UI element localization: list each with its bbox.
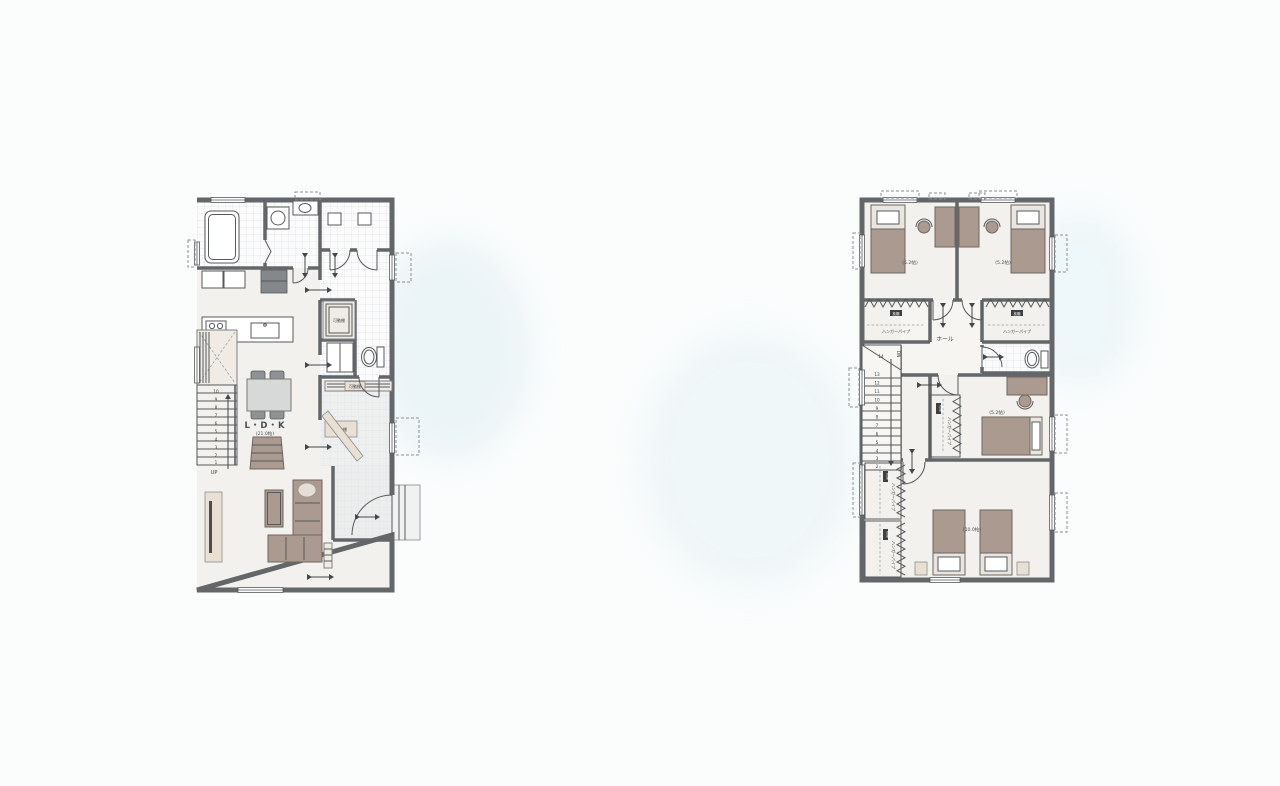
pillow (985, 557, 1007, 571)
stair-number: 2 (876, 464, 879, 469)
movable-shelf-closet: 可動棚 (323, 301, 355, 339)
stair-number: 7 (876, 423, 879, 428)
stair-number: 3 (876, 456, 879, 461)
stair-number: 11 (874, 389, 880, 394)
stair-number: 4 (876, 449, 879, 454)
stair-number: 12 (874, 381, 880, 386)
pillow-shelf-label: 枕棚 (886, 531, 891, 538)
hanger-pipe-label: ハンガーパイプ (1003, 328, 1031, 334)
bathtub (205, 211, 239, 263)
stair-number: 8 (215, 405, 218, 410)
stair-number: 7 (215, 413, 218, 418)
stair-number: 9 (215, 397, 218, 402)
upper-cabinet (202, 271, 223, 288)
tv-board (205, 492, 222, 562)
stair-number: 10 (874, 398, 880, 403)
floor-plan-2f: (5.2帖) (5.2帖) 枕棚 ハンガーパイプ 枕棚 ハンガーパイプ ホール … (845, 185, 1080, 595)
room-size-label: (5.2帖) (989, 409, 1005, 416)
room-size-label: (10.0帖) (963, 526, 982, 533)
stair-number: 10 (213, 389, 219, 394)
floor-plan-1f: 10 9 8 7 6 5 4 3 2 1 UP L・D・K (21.0帖) (183, 185, 428, 605)
shoe-cabinet (324, 543, 332, 568)
washing-machine (267, 207, 289, 229)
ldk-label: L・D・K (244, 421, 285, 431)
stair-number: 6 (876, 432, 879, 437)
movable-shelf-label: 可動棚 (333, 317, 345, 323)
hanger-pipe-label: ハンガーパイプ (891, 483, 897, 511)
washbasin (327, 343, 353, 372)
upper-cabinet (224, 271, 245, 288)
wall-cabinet (328, 213, 341, 225)
hanger-pipe-label: ハンガーパイプ (882, 328, 910, 334)
stair-number: 5 (876, 440, 879, 445)
stair-number: 6 (215, 421, 218, 426)
stair-number: 13 (874, 372, 880, 377)
stairs-down: 14 DN 13 12 11 10 9 8 7 6 5 4 3 2 (862, 345, 901, 470)
dining-table (247, 379, 291, 411)
hall-label: ホール (936, 336, 954, 343)
stair-number: 1 (215, 460, 218, 465)
desk (935, 207, 955, 247)
desk (1007, 377, 1047, 395)
stairs-up-label: UP (211, 470, 218, 476)
stairs-down-label: DN (896, 351, 901, 357)
toilet-2f (1025, 350, 1048, 368)
toilet-1f (362, 347, 385, 367)
room-size-label: (5.2帖) (902, 259, 918, 266)
pillow-shelf-label: 枕棚 (939, 405, 944, 412)
pillow-shelf-label: 枕棚 (886, 473, 891, 480)
ldk-size-label: (21.0帖) (256, 430, 275, 437)
pillow (877, 211, 899, 224)
hanger-pipe-label: ハンガーパイプ (891, 541, 897, 569)
page: { "page": { "background_color": "#fbfdfd… (0, 0, 1280, 786)
scan-tint (640, 330, 860, 590)
side-table (1017, 562, 1029, 575)
stair-number: 4 (215, 437, 218, 442)
stair-number: 2 (215, 453, 218, 458)
rug (250, 437, 284, 469)
porch (392, 485, 420, 540)
desk (959, 207, 979, 247)
pillow (938, 557, 960, 571)
pillow-shelf-label: 枕棚 (893, 311, 900, 316)
pantry-cabinet (197, 330, 237, 385)
room-size-label: (5.2帖) (995, 259, 1011, 266)
pillow (1032, 422, 1040, 450)
stair-top-step: 14 (878, 354, 884, 359)
stair-number: 9 (876, 406, 879, 411)
stair-number: 5 (215, 429, 218, 434)
pillow (1017, 211, 1039, 224)
corridor-shelf: 可動棚 (325, 381, 392, 391)
wall-cabinet (358, 213, 371, 225)
pillow-shelf-label: 枕棚 (1014, 311, 1021, 316)
movable-shelf-label: 可動棚 (349, 383, 361, 389)
hanger-pipe-label: ハンガーパイプ (947, 417, 953, 445)
stair-number: 3 (215, 445, 218, 450)
side-table (915, 562, 927, 575)
stair-number: 8 (876, 415, 879, 420)
coffee-table (265, 490, 283, 527)
